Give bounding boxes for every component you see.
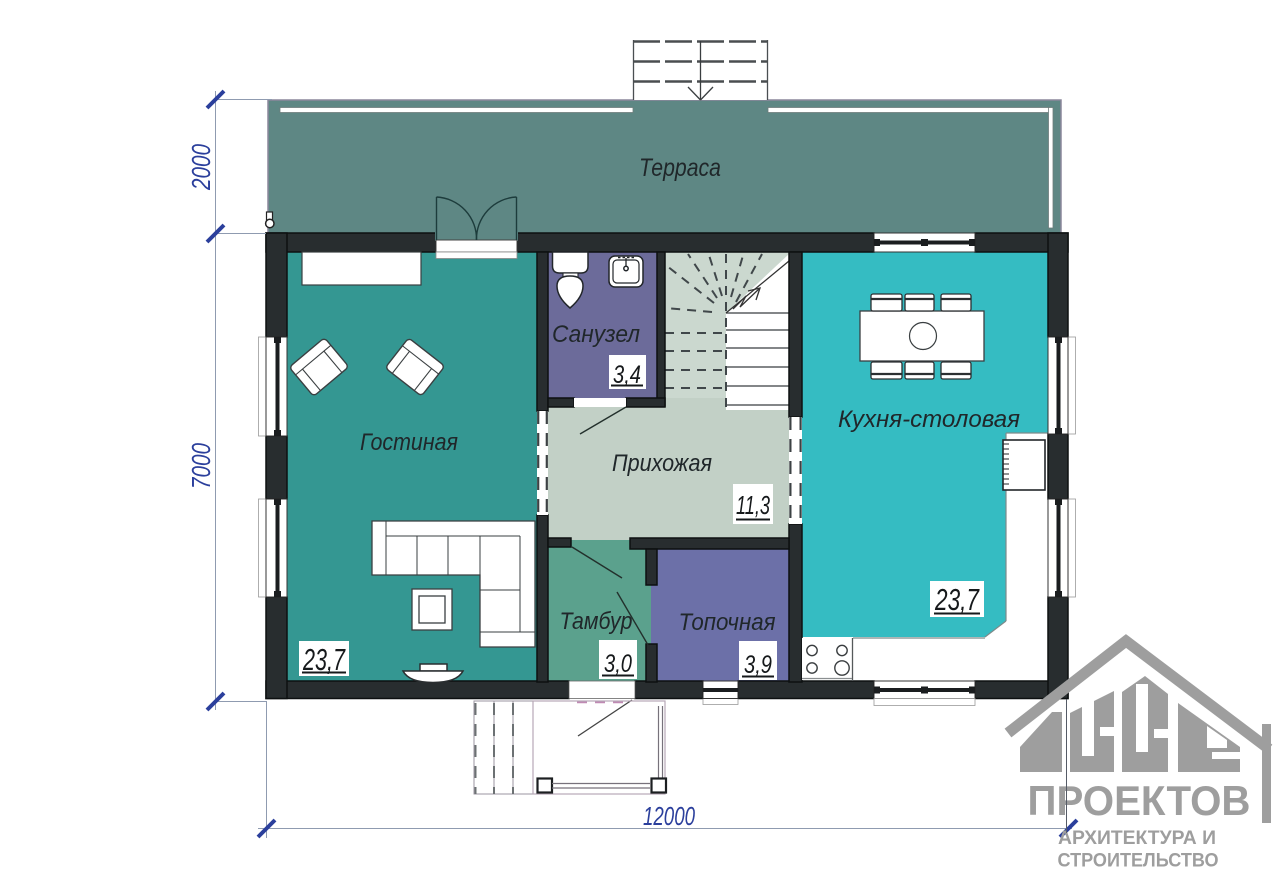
svg-text:11,3: 11,3	[736, 490, 770, 520]
svg-text:3,0: 3,0	[604, 650, 632, 678]
svg-text:Кухня-столовая: Кухня-столовая	[838, 406, 1020, 433]
svg-text:Топочная: Топочная	[679, 609, 776, 636]
svg-text:Санузел: Санузел	[552, 321, 640, 348]
svg-text:23,7: 23,7	[934, 582, 980, 617]
svg-text:Тамбур: Тамбур	[560, 608, 633, 635]
svg-text:7000: 7000	[186, 443, 216, 489]
svg-text:Прихожая: Прихожая	[612, 450, 712, 477]
svg-text:12000: 12000	[643, 801, 695, 831]
svg-text:АРХИТЕКТУРА И: АРХИТЕКТУРА И	[1058, 828, 1216, 849]
svg-text:Терраса: Терраса	[639, 154, 721, 182]
svg-text:2000: 2000	[186, 144, 216, 191]
svg-text:СТРОИТЕЛЬСТВО: СТРОИТЕЛЬСТВО	[1058, 851, 1219, 872]
svg-text:Гостиная: Гостиная	[360, 429, 458, 456]
svg-text:3,9: 3,9	[744, 651, 772, 679]
svg-text:ПРОЕКТОВ: ПРОЕКТОВ	[1028, 777, 1251, 824]
